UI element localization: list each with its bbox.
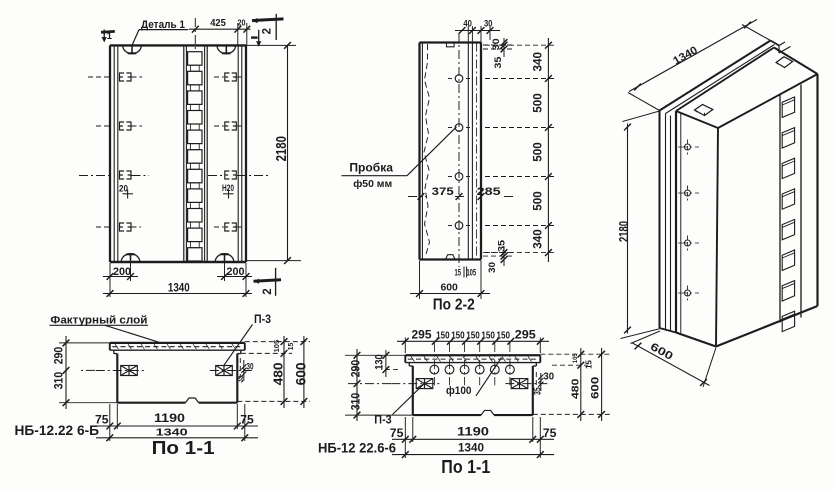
svg-text:По 1-1: По 1-1 (152, 438, 215, 458)
svg-text:ф50 мм: ф50 мм (353, 178, 392, 190)
svg-text:150: 150 (451, 330, 465, 342)
svg-text:310: 310 (52, 372, 66, 390)
svg-text:480: 480 (569, 378, 581, 399)
svg-text:75: 75 (543, 426, 557, 440)
svg-text:15: 15 (454, 267, 461, 277)
svg-text:40: 40 (463, 18, 472, 28)
svg-text:295: 295 (515, 330, 537, 342)
svg-text:15: 15 (286, 343, 295, 351)
svg-text:НБ-12.22 6-Б: НБ-12.22 6-Б (15, 423, 100, 438)
svg-text:Пробка: Пробка (349, 163, 393, 175)
svg-text:2180: 2180 (616, 221, 631, 242)
svg-text:480: 480 (272, 362, 286, 385)
svg-text:ф100: ф100 (446, 385, 472, 397)
svg-text:П-3: П-3 (254, 314, 271, 326)
svg-text:340: 340 (531, 229, 545, 249)
svg-text:Фактурный слой: Фактурный слой (50, 314, 147, 326)
svg-text:По 2-2: По 2-2 (433, 297, 475, 314)
svg-text:По 1-1: По 1-1 (441, 456, 490, 477)
svg-text:500: 500 (531, 191, 545, 211)
svg-text:30: 30 (491, 38, 501, 50)
svg-text:1190: 1190 (154, 411, 185, 425)
svg-text:105: 105 (466, 267, 476, 277)
svg-text:35: 35 (235, 375, 246, 382)
svg-text:35: 35 (532, 387, 543, 395)
svg-text:290: 290 (348, 360, 362, 378)
svg-text:375: 375 (432, 186, 454, 198)
svg-text:310: 310 (348, 393, 362, 411)
svg-text:200: 200 (113, 266, 131, 278)
svg-text:500: 500 (531, 142, 545, 162)
svg-text:425: 425 (210, 18, 226, 29)
svg-text:35: 35 (496, 240, 506, 252)
svg-text:НБ-12 22.6-6: НБ-12 22.6-6 (318, 441, 396, 456)
svg-text:П-3: П-3 (374, 413, 392, 427)
svg-text:150: 150 (436, 330, 450, 342)
svg-text:200: 200 (227, 266, 245, 278)
svg-text:285: 285 (477, 186, 501, 198)
svg-text:20: 20 (238, 19, 246, 28)
svg-text:600: 600 (590, 377, 602, 399)
svg-text:15: 15 (584, 360, 593, 369)
svg-text:600: 600 (440, 283, 458, 294)
svg-text:30: 30 (487, 262, 497, 273)
svg-text:1190: 1190 (457, 425, 489, 439)
svg-text:340: 340 (531, 52, 545, 72)
svg-text:130: 130 (374, 354, 386, 370)
svg-text:30: 30 (543, 372, 554, 383)
svg-text:150: 150 (497, 330, 511, 342)
svg-text:30: 30 (247, 362, 254, 373)
svg-text:2180: 2180 (274, 136, 290, 161)
svg-text:1340: 1340 (168, 281, 190, 295)
svg-text:105: 105 (572, 353, 579, 363)
svg-text:30: 30 (484, 19, 493, 29)
svg-text:1340: 1340 (156, 426, 188, 438)
svg-text:75: 75 (240, 413, 254, 427)
svg-text:35: 35 (493, 57, 503, 69)
svg-text:600: 600 (294, 362, 309, 385)
svg-text:20: 20 (119, 184, 128, 194)
svg-text:295: 295 (412, 330, 433, 342)
svg-text:150: 150 (481, 330, 495, 342)
svg-text:1340: 1340 (458, 441, 484, 455)
svg-text:290: 290 (52, 347, 66, 365)
svg-text:500: 500 (531, 93, 545, 113)
svg-text:2: 2 (262, 288, 274, 294)
svg-text:75: 75 (390, 426, 404, 440)
svg-text:105: 105 (272, 340, 281, 353)
svg-text:2: 2 (262, 28, 274, 34)
svg-text:1: 1 (107, 31, 112, 41)
svg-text:150: 150 (466, 330, 480, 342)
